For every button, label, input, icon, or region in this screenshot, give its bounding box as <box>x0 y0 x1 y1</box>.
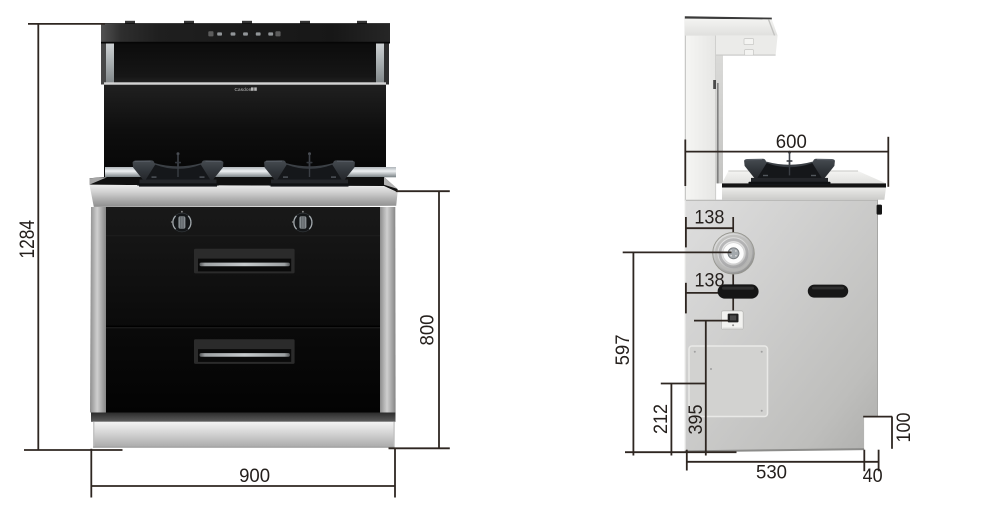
svg-text:600: 600 <box>776 132 807 153</box>
svg-text:40: 40 <box>863 466 883 487</box>
svg-text:395: 395 <box>686 405 707 435</box>
svg-text:1284: 1284 <box>16 220 39 259</box>
svg-text:138: 138 <box>695 271 725 292</box>
svg-text:100: 100 <box>894 413 915 443</box>
svg-text:Casdon: Casdon <box>234 87 251 92</box>
svg-text:530: 530 <box>756 462 787 483</box>
svg-text:800: 800 <box>418 315 439 346</box>
svg-text:138: 138 <box>694 207 724 228</box>
svg-text:212: 212 <box>651 404 672 434</box>
svg-text:900: 900 <box>239 466 270 487</box>
svg-text:597: 597 <box>613 334 634 365</box>
